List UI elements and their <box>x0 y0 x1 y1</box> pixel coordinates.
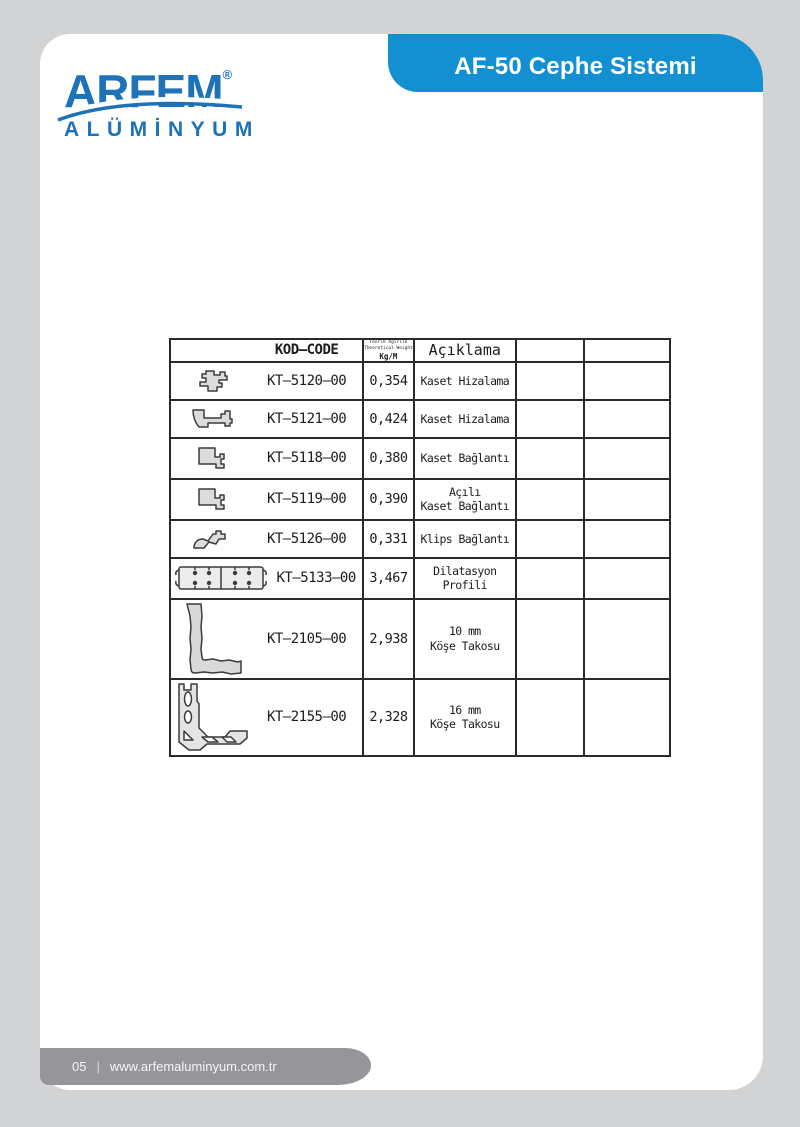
footer-separator: | <box>86 1059 109 1074</box>
profile-description: Kaset Bağlantı <box>415 451 515 465</box>
catalog-page: AF-50 Cephe Sistemi ARFEM® ALÜMİNYUM KOD… <box>0 0 800 1127</box>
profile-code: KT–5126–00 <box>251 531 362 547</box>
profile-description: Kaset Hizalama <box>415 412 515 426</box>
profile-description: Köşe Takosu <box>415 639 515 653</box>
profile-description: Kaset Hizalama <box>415 374 515 388</box>
profile-code: KT–5118–00 <box>251 450 362 466</box>
brand-wordmark: ARFEM® <box>64 68 284 114</box>
profile-drawing-kt-5120 <box>171 369 251 393</box>
header-kod-code: KOD–CODE <box>251 342 362 358</box>
profile-weight: 0,424 <box>363 400 414 438</box>
profile-description: Profili <box>415 578 515 592</box>
profile-drawing-kt-5121 <box>171 407 251 431</box>
profile-drawing-kt-2105 <box>171 601 251 677</box>
page-number: 05 <box>40 1059 86 1074</box>
profile-code: KT–5120–00 <box>251 373 362 389</box>
table-row: KT–2155–00 2,328 16 mm Köşe Takosu <box>170 679 670 756</box>
footer-bar: 05 | www.arfemaluminyum.com.tr <box>40 1048 371 1085</box>
profile-description: Kaset Bağlantı <box>415 499 515 513</box>
table-row: KT–5120–00 0,354 Kaset Hizalama <box>170 362 670 400</box>
profile-description: 10 mm <box>415 624 515 638</box>
profile-weight: 2,328 <box>363 679 414 756</box>
profile-drawing-kt-5126 <box>171 528 251 550</box>
table-row: KT–5126–00 0,331 Klips Bağlantı <box>170 520 670 558</box>
brand-name: ARFEM <box>64 65 223 117</box>
table-row: KT–2105–00 2,938 10 mm Köşe Takosu <box>170 599 670 679</box>
profile-weight: 0,390 <box>363 479 414 520</box>
table-row: KT–5121–00 0,424 Kaset Hizalama <box>170 400 670 438</box>
registered-trademark: ® <box>223 67 233 82</box>
brand-subtitle: ALÜMİNYUM <box>64 118 284 142</box>
profile-code: KT–5133–00 <box>270 570 362 586</box>
table-row: KT–5118–00 0,380 Kaset Bağlantı <box>170 438 670 479</box>
header-bar: AF-50 Cephe Sistemi <box>388 34 763 92</box>
header-aciklama: Açıklama <box>414 339 516 362</box>
website-url: www.arfemaluminyum.com.tr <box>110 1059 277 1074</box>
page-title: AF-50 Cephe Sistemi <box>454 45 697 81</box>
profile-weight: 3,467 <box>363 558 414 599</box>
header-empty-1 <box>516 339 584 362</box>
profile-description: Köşe Takosu <box>415 717 515 731</box>
profile-code: KT–5119–00 <box>251 491 362 507</box>
profile-description: Dilatasyon <box>415 564 515 578</box>
profile-drawing-kt-5133 <box>171 562 270 594</box>
profile-weight: 0,331 <box>363 520 414 558</box>
header-empty-2 <box>584 339 670 362</box>
product-table: KOD–CODE Teorik Ağırlık Theoretical Weig… <box>169 338 671 757</box>
profile-drawing-kt-2155 <box>171 681 251 753</box>
table-row: KT–5119–00 0,390 Açılı Kaset Bağlantı <box>170 479 670 520</box>
profile-description: Açılı <box>415 485 515 499</box>
profile-code: KT–2105–00 <box>251 631 362 647</box>
profile-code: KT–5121–00 <box>251 411 362 427</box>
profile-code: KT–2155–00 <box>251 709 362 725</box>
brand-logo: ARFEM® ALÜMİNYUM <box>64 68 284 142</box>
profile-description: Klips Bağlantı <box>415 532 515 546</box>
profile-description: 16 mm <box>415 703 515 717</box>
table-header-row: KOD–CODE Teorik Ağırlık Theoretical Weig… <box>170 339 670 362</box>
table-row: KT–5133–00 3,467 Dilatasyon Profili <box>170 558 670 599</box>
header-weight: Teorik Ağırlık Theoretical Weight Kg/M <box>363 339 414 362</box>
profile-drawing-kt-5118 <box>171 445 251 471</box>
profile-weight: 2,938 <box>363 599 414 679</box>
profile-weight: 0,380 <box>363 438 414 479</box>
profile-drawing-kt-5119 <box>171 486 251 512</box>
profile-weight: 0,354 <box>363 362 414 400</box>
